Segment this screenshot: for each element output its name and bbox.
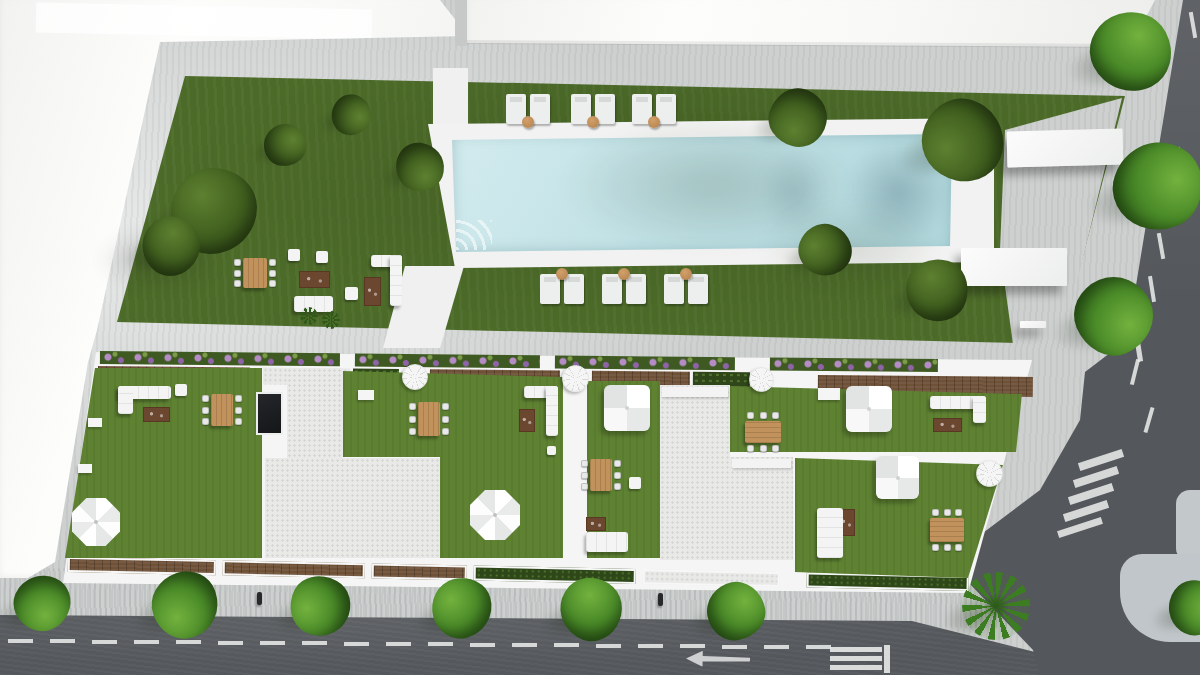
stop-bar (830, 656, 882, 661)
lane-dash (680, 644, 705, 648)
stop-bar (884, 645, 890, 673)
spiral-staircase (749, 367, 774, 392)
dining-chair (409, 403, 416, 410)
white-planter-box (358, 390, 374, 400)
spiral-staircase (976, 460, 1003, 487)
outdoor-rug (933, 418, 962, 432)
dining-chair (269, 259, 276, 266)
lane-dash (386, 642, 411, 646)
street-post (658, 593, 663, 606)
sun-lounger (564, 274, 584, 304)
spiral-staircase (402, 364, 428, 390)
dining-chair (442, 403, 449, 410)
flower-planter (770, 357, 938, 372)
dining-chair (932, 509, 939, 516)
sun-lounger (626, 274, 646, 304)
outdoor-sofa (586, 532, 628, 552)
hedge-strip (474, 566, 636, 584)
dining-chair (747, 445, 754, 452)
lane-dash (176, 640, 201, 644)
dining-chair (772, 445, 779, 452)
dining-chair (581, 483, 588, 490)
outdoor-rug (299, 271, 330, 288)
lane-dash (428, 642, 453, 646)
street-post (257, 592, 262, 605)
gravel-strip (643, 569, 780, 587)
outdoor-sofa (118, 386, 133, 414)
dining-chair (202, 395, 209, 402)
outdoor-rug (519, 409, 535, 432)
dining-chair (614, 483, 621, 490)
palm-shrub (322, 311, 340, 329)
stop-bar (830, 647, 882, 652)
outdoor-rug (143, 407, 170, 422)
building-west-roof-slab (36, 2, 373, 39)
side-table (556, 268, 568, 280)
parasol-pole (493, 513, 497, 517)
tent-peak (867, 407, 871, 411)
dining-chair (269, 280, 276, 287)
outdoor-rug (364, 277, 381, 306)
garden-wall-slab (1020, 321, 1046, 328)
dining-chair (932, 544, 939, 551)
dining-table (930, 518, 964, 542)
sun-lounger (664, 274, 684, 304)
stop-bar (830, 665, 882, 670)
outdoor-sofa (817, 508, 843, 558)
roof-skylight (256, 392, 283, 435)
dining-table (590, 459, 612, 491)
tent-peak (625, 406, 629, 410)
cube-stool (547, 446, 556, 455)
aerial-site-render (0, 0, 1200, 675)
outdoor-sofa (390, 255, 402, 306)
dining-chair (234, 259, 241, 266)
lane-dash (470, 643, 495, 647)
lane-dash (92, 640, 117, 644)
lane-dash (8, 639, 33, 643)
dining-chair (442, 416, 449, 423)
dining-chair (772, 412, 779, 419)
cube-stool (288, 249, 300, 261)
dining-chair (235, 395, 242, 402)
spiral-staircase (562, 365, 589, 392)
dining-table (211, 394, 233, 426)
side-table (680, 268, 692, 280)
dining-chair (955, 509, 962, 516)
lane-dash (50, 639, 75, 643)
garden-wall-slab (961, 248, 1067, 286)
dining-chair (269, 270, 276, 277)
palm-shrub (300, 307, 318, 325)
sun-lounger (688, 274, 708, 304)
side-table (648, 116, 660, 128)
lane-dash (554, 643, 579, 647)
dining-chair (235, 407, 242, 414)
dining-chair (581, 460, 588, 467)
outdoor-sofa (546, 386, 558, 436)
cube-stool (175, 384, 187, 396)
pool-walkway-north (433, 68, 468, 128)
outdoor-sofa (973, 396, 986, 423)
wood-deck (372, 563, 467, 580)
dining-table (745, 421, 781, 443)
flower-planter (100, 351, 340, 366)
white-planter-box (88, 418, 102, 427)
outdoor-rug (586, 517, 606, 531)
dining-chair (235, 418, 242, 425)
dining-chair (760, 412, 767, 419)
sun-lounger (540, 274, 560, 304)
dining-chair (202, 418, 209, 425)
dining-chair (760, 445, 767, 452)
dining-chair (409, 416, 416, 423)
lane-dash (344, 642, 369, 646)
dining-chair (614, 472, 621, 479)
pool-steps (456, 220, 492, 250)
lane-dash (806, 645, 831, 649)
lane-dash (596, 644, 621, 648)
parasol-pole (94, 520, 98, 524)
traffic-island-east (1176, 490, 1200, 562)
lane-dash (260, 641, 285, 645)
dining-chair (747, 412, 754, 419)
lane-dash (638, 644, 663, 648)
gravel-roof (287, 368, 343, 458)
dining-chair (944, 509, 951, 516)
side-table (587, 116, 599, 128)
dining-chair (581, 472, 588, 479)
cube-stool (629, 477, 641, 489)
white-planter-box (78, 464, 92, 473)
dining-chair (409, 428, 416, 435)
dining-chair (202, 407, 209, 414)
roof-parapet (732, 459, 791, 468)
garden-wall-slab (1007, 128, 1124, 167)
lane-dash (764, 645, 789, 649)
cube-stool (345, 287, 358, 300)
dining-chair (614, 460, 621, 467)
lane-dash (302, 641, 327, 645)
flower-planter (355, 354, 540, 369)
dining-chair (442, 428, 449, 435)
side-table (618, 268, 630, 280)
dining-table (243, 258, 267, 288)
cube-stool (316, 251, 328, 263)
dining-chair (955, 544, 962, 551)
lane-dash (218, 641, 243, 645)
dining-chair (944, 544, 951, 551)
lane-dash (722, 645, 747, 649)
white-planter-box (818, 388, 840, 400)
wood-deck (223, 560, 365, 578)
tent-peak (896, 476, 900, 480)
side-table (522, 116, 534, 128)
palm-tree-crown (984, 594, 1008, 618)
lane-dash (512, 643, 537, 647)
gravel-roof (265, 458, 440, 558)
sun-lounger (602, 274, 622, 304)
roof-parapet (662, 387, 728, 397)
dining-chair (234, 280, 241, 287)
dining-table (418, 402, 440, 436)
dining-chair (234, 270, 241, 277)
